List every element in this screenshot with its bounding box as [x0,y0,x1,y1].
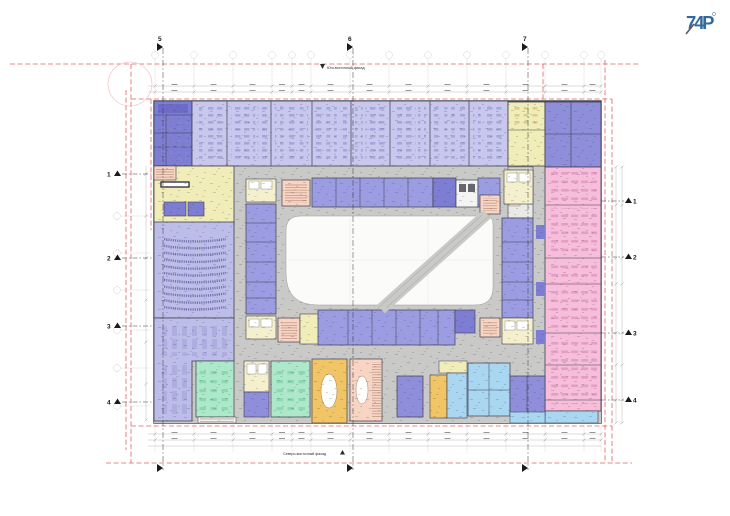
svg-text:4: 4 [633,398,637,405]
svg-text:6: 6 [348,36,352,43]
svg-text:2: 2 [633,255,637,262]
svg-text:4: 4 [107,400,111,407]
svg-text:Юго-восточный фасад: Юго-восточный фасад [327,66,365,70]
svg-text:2: 2 [107,256,111,263]
svg-text:3: 3 [107,324,111,331]
svg-text:Северо-восточный фасад: Северо-восточный фасад [283,452,327,456]
svg-text:3: 3 [633,331,637,338]
svg-text:1: 1 [633,199,637,206]
svg-text:1: 1 [107,172,111,179]
svg-text:7: 7 [523,36,527,43]
svg-text:5: 5 [158,36,162,43]
